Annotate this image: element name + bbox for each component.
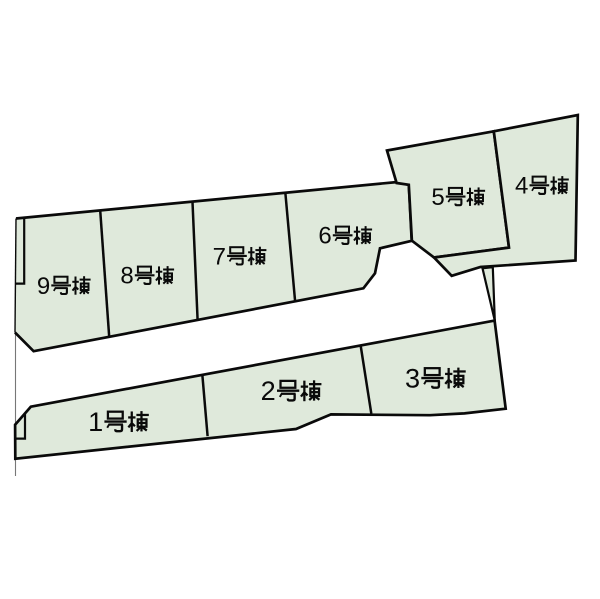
- svg-text:7: 7: [213, 243, 226, 270]
- svg-text:2: 2: [261, 375, 276, 406]
- svg-text:9: 9: [37, 273, 50, 300]
- svg-text:8: 8: [120, 263, 133, 290]
- svg-text:5: 5: [431, 184, 444, 211]
- svg-text:6: 6: [318, 223, 331, 250]
- svg-text:4: 4: [515, 173, 528, 200]
- svg-text:3: 3: [405, 363, 420, 394]
- svg-text:1: 1: [88, 406, 103, 437]
